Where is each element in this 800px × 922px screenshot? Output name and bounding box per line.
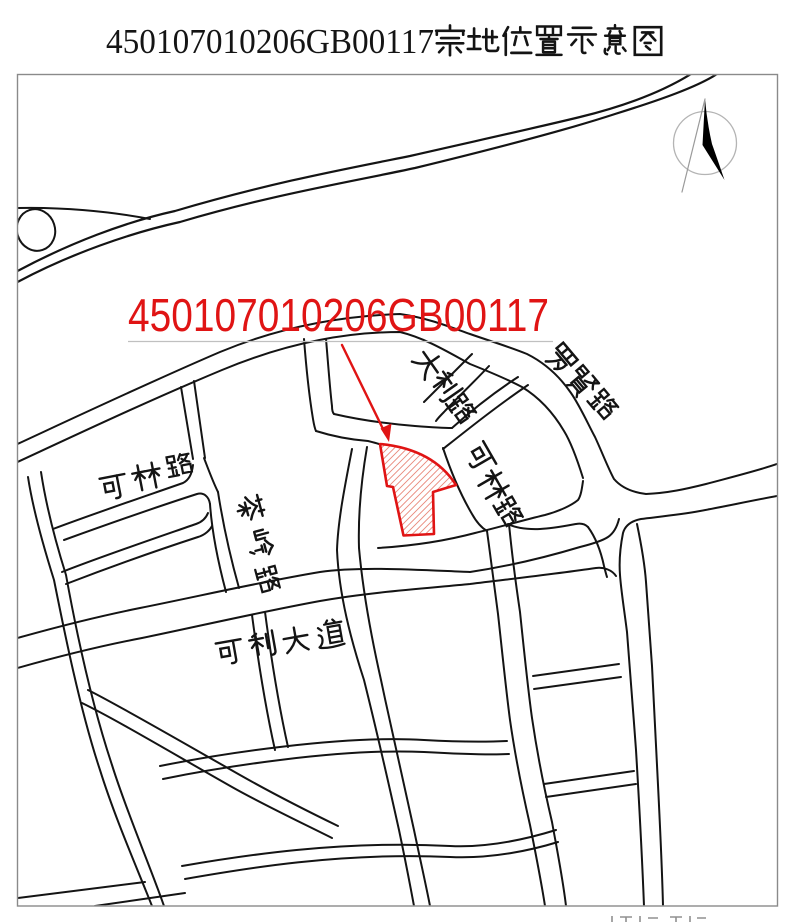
svg-text:450107010206GB00117: 450107010206GB00117: [128, 289, 549, 341]
svg-text:450107010206GB00117: 450107010206GB00117: [106, 22, 434, 61]
